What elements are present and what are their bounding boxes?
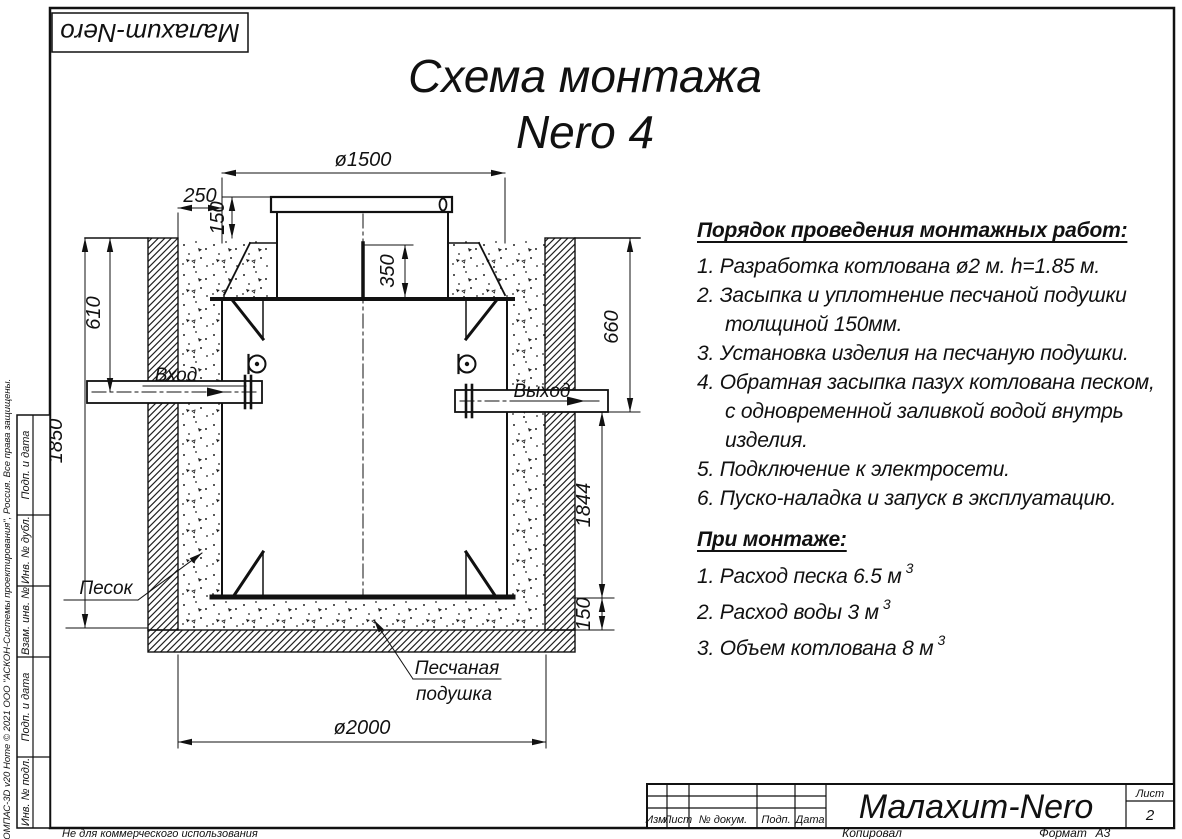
format-value: А3 (1095, 826, 1111, 839)
col-podp: Подп. (761, 814, 790, 826)
left-strip-labels: Подп. и дата Инв. № дубл. Взам. инв. № П… (20, 431, 32, 827)
dim-1500: ø1500 (335, 149, 392, 171)
tank-body-fill (222, 299, 507, 597)
cubic-superscript: 3 (906, 560, 914, 576)
montage-heading: При монтаже: (697, 528, 1172, 552)
cubic-superscript: 3 (937, 632, 945, 648)
dim-150-bottom: 150 (573, 597, 595, 630)
outlet-label: Выход (513, 381, 570, 402)
installation-order: Порядок проведения монтажных работ: 1. Р… (697, 216, 1172, 513)
lid-handle (440, 199, 447, 211)
title-block-name: Малахит-Nero (859, 788, 1094, 826)
sheet-label: Лист (1135, 788, 1164, 800)
order-heading: Порядок проведения монтажных работ: (697, 216, 1172, 245)
cell-vzam-inv: Взам. инв. № (20, 587, 32, 655)
col-docnum: № докум. (699, 814, 747, 826)
logo-text: Малахит-Nero (60, 18, 239, 48)
wall-fitting-right (459, 355, 476, 373)
dim-1844: 1844 (573, 483, 595, 528)
montage-requirements: При монтаже: 1. Расход песка 6.5 м3 2. Р… (697, 528, 1172, 670)
logo-stamp: Малахит-Nero (52, 13, 248, 52)
title-block-columns: Изм. Лист № докум. Подп. Дата (645, 814, 824, 826)
cell-inv-dubl: Инв. № дубл. (20, 516, 32, 584)
order-item-cont: толщиной 150мм. (697, 310, 1172, 339)
cubic-superscript: 3 (883, 596, 891, 612)
sand-pad-label-line1: Песчаная (415, 658, 500, 679)
kompas-copyright: КОМПАС-3D v20 Home © 2021 ООО "АСКОН-Сис… (2, 379, 13, 839)
order-item-cont: с одновременной заливкой водой внутрь (697, 397, 1172, 426)
copied-label: Копировал (842, 826, 902, 839)
sand-label: Песок (79, 578, 133, 599)
cell-inv-podl: Инв. № подл. (20, 758, 32, 826)
tank-lid (271, 197, 452, 212)
non-commercial-note: Не для коммерческого использования (62, 828, 258, 839)
pit-wall-right (545, 238, 575, 630)
sheet-number: 2 (1145, 807, 1155, 824)
montage-item: 3. Объем котлована 8 м3 (697, 634, 1172, 670)
order-item: 4. Обратная засыпка пазух котлована песк… (697, 368, 1172, 397)
pit-wall-left (148, 238, 178, 630)
order-item: 2. Засыпка и уплотнение песчаной подушки (697, 281, 1172, 310)
title-block: Изм. Лист № докум. Подп. Дата Малахит-Ne… (645, 784, 1174, 839)
cell-podp-data-2: Подп. и дата (20, 673, 32, 742)
cell-podp-data-1: Подп. и дата (20, 431, 32, 500)
dim-150-top: 150 (207, 201, 229, 234)
order-item: 5. Подключение к электросети. (697, 455, 1172, 484)
installation-drawing: Вход Выход (45, 149, 640, 748)
order-item-cont: изделия. (697, 426, 1172, 455)
dim-660: 660 (601, 310, 623, 343)
format-label: Формат (1039, 826, 1087, 839)
montage-item: 2. Расход воды 3 м3 (697, 598, 1172, 634)
order-item: 3. Установка изделия на песчаную подушки… (697, 339, 1172, 368)
order-item: 6. Пуско-наладка и запуск в эксплуатацию… (697, 484, 1172, 513)
drawing-sheet: Малахит-Nero Схема монтажа Nero 4 (0, 0, 1182, 839)
sand-pad-label-line2: подушка (416, 684, 492, 705)
montage-item: 1. Расход песка 6.5 м3 (697, 562, 1172, 598)
inlet-label: Вход (155, 365, 197, 386)
col-list: Лист (663, 814, 692, 826)
order-item: 1. Разработка котлована ø2 м. h=1.85 м. (697, 252, 1172, 281)
dim-610: 610 (83, 296, 105, 329)
dim-350: 350 (377, 254, 399, 287)
col-data: Дата (793, 814, 824, 826)
wall-fitting-left (249, 355, 266, 373)
sheet-title-line1: Схема монтажа (408, 50, 762, 102)
dim-2000: ø2000 (334, 717, 391, 739)
pit-bottom (148, 630, 575, 652)
sheet-title-line2: Nero 4 (516, 106, 654, 158)
